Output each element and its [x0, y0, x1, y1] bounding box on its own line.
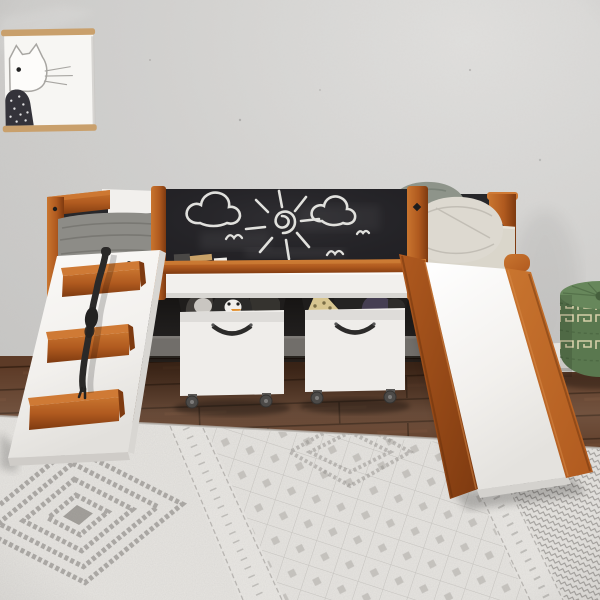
product-photo [0, 0, 600, 600]
vignette-overlay [0, 0, 600, 600]
scene-svg [0, 0, 600, 600]
